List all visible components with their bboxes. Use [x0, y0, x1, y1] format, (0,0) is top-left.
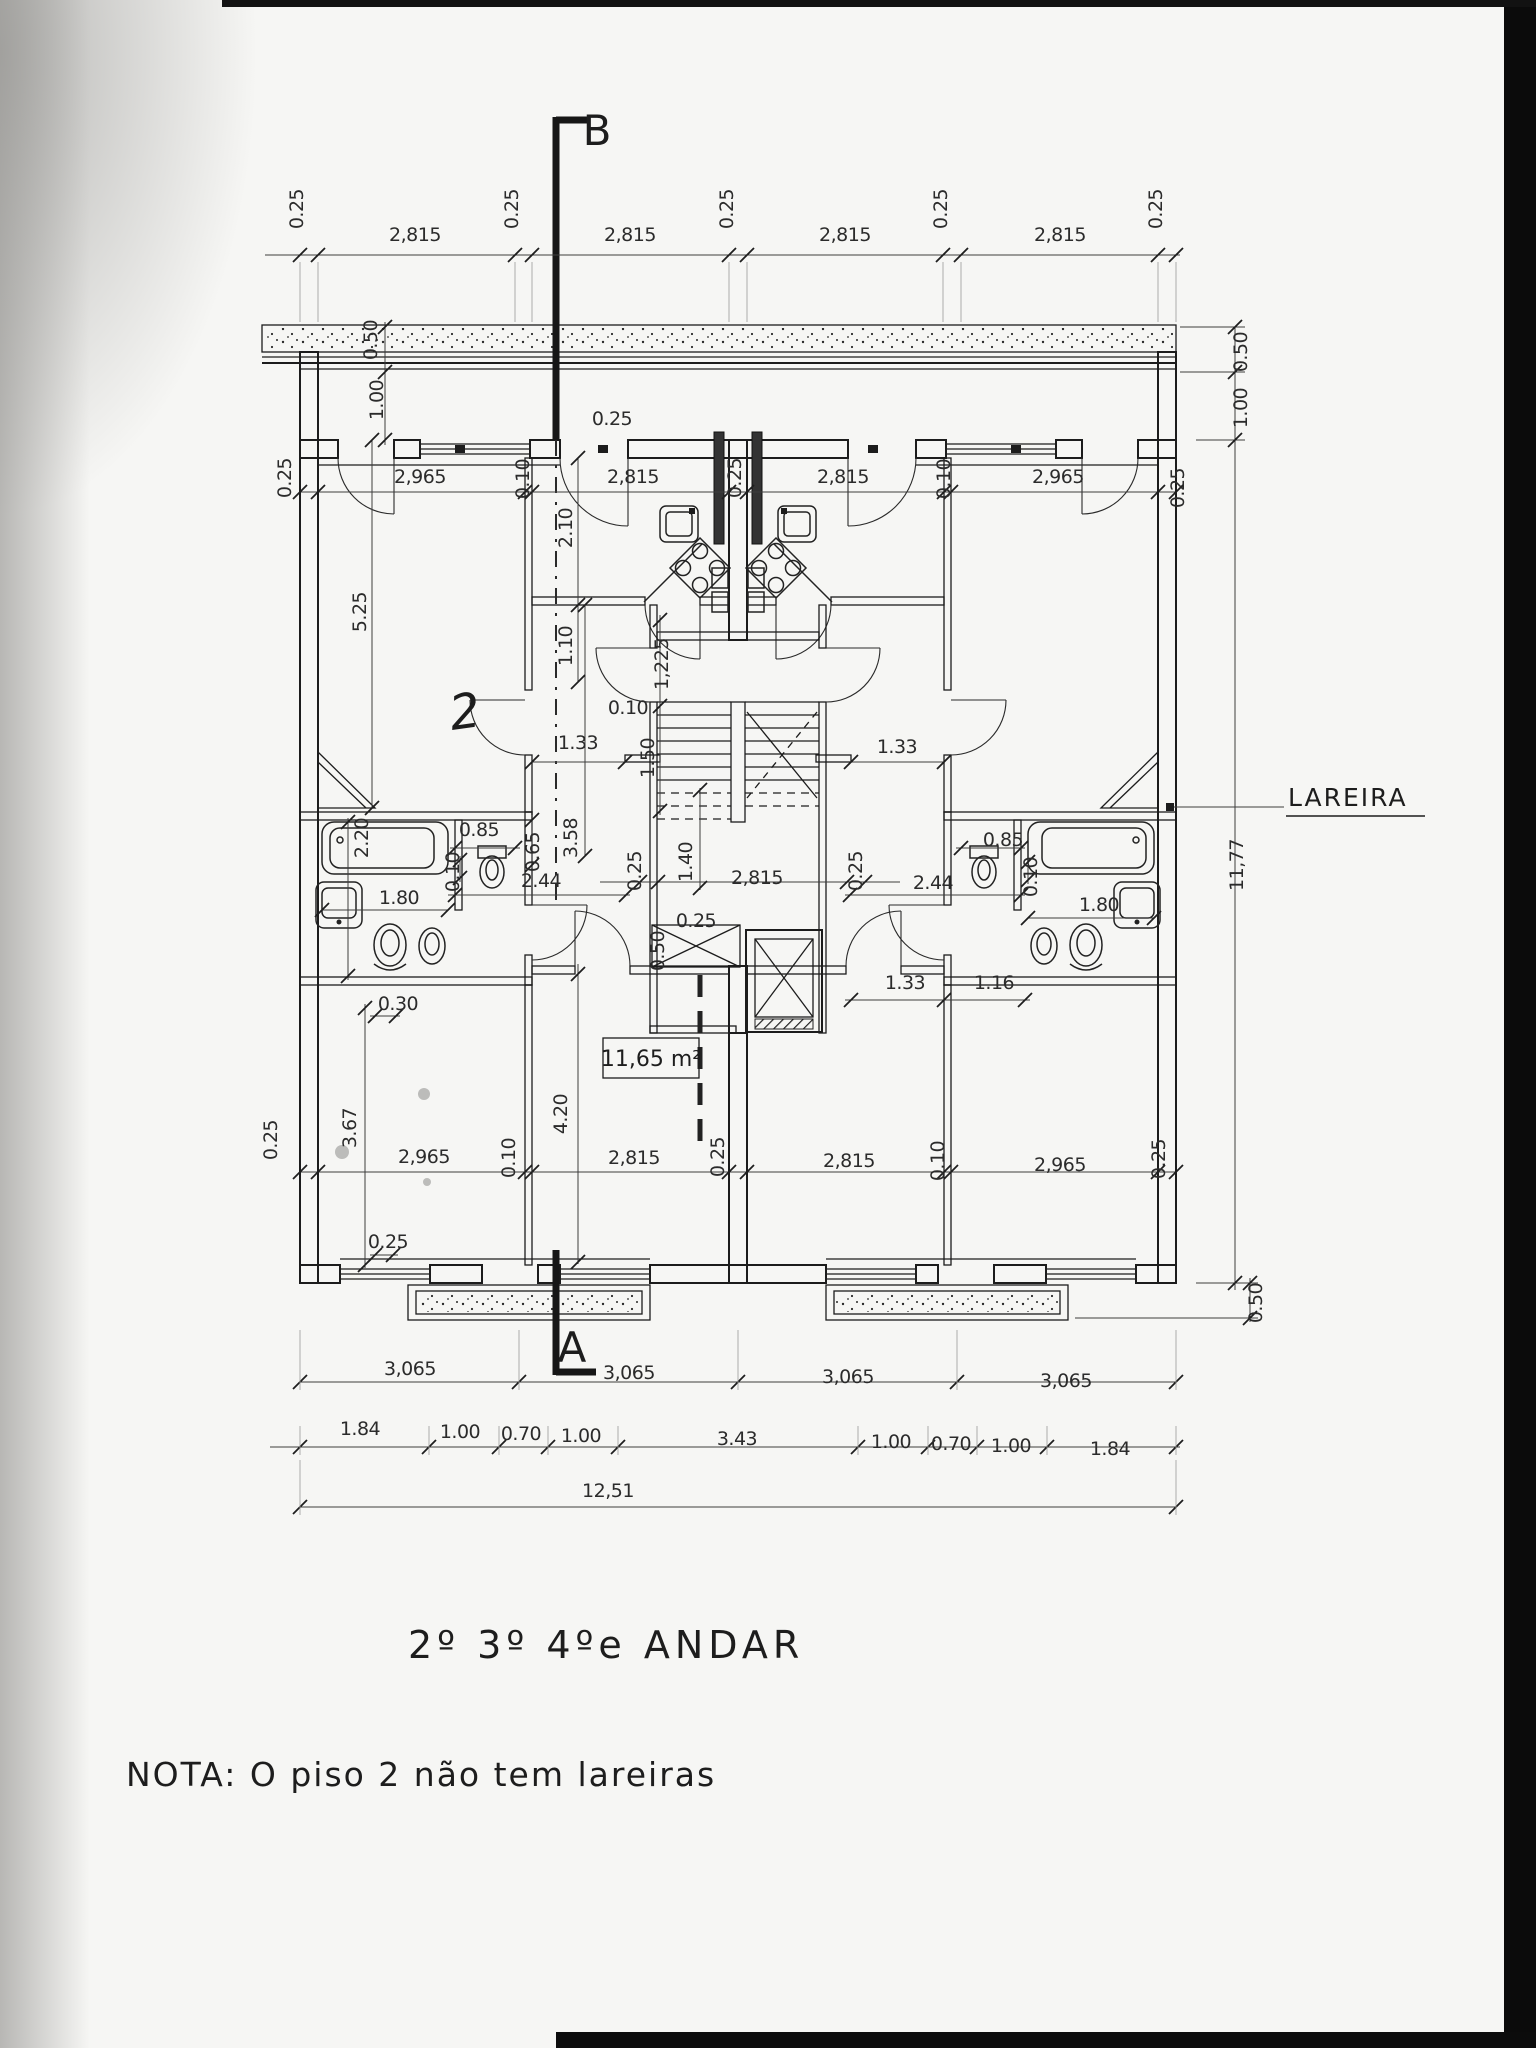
- dimension-label: 2.20: [351, 818, 373, 858]
- fireplace: [318, 752, 375, 808]
- dimension-label: 2,815: [1034, 224, 1086, 246]
- dimension-label: 0.10: [1020, 857, 1042, 897]
- dimension-label: 2.10: [555, 508, 577, 548]
- dimension-label: 0.85: [459, 819, 499, 841]
- dimension-labels: 0.252,8150.252,8150.252,8150.252,8150.25…: [260, 189, 1267, 1502]
- dimension-label: 3,065: [1040, 1370, 1092, 1392]
- handwritten-mark: 2: [446, 682, 484, 742]
- dimension-label: 0.25: [592, 408, 632, 430]
- dimension-label: 1.16: [974, 972, 1014, 994]
- wc-toilet: [478, 846, 506, 888]
- dimension-label: 12,51: [582, 1480, 634, 1502]
- dimension-label: 2,815: [604, 224, 656, 246]
- dimension-label: 0.25: [707, 1137, 729, 1177]
- dimension-label: 11,77: [1226, 839, 1248, 891]
- dimension-label: 2,965: [398, 1146, 450, 1168]
- window-glazing: [340, 1269, 650, 1279]
- dimension-label: 0.85: [983, 829, 1023, 851]
- svg-text:11,65 m²: 11,65 m²: [601, 1047, 701, 1072]
- dimension-label: 2.44: [521, 870, 562, 892]
- dimension-label: 1.10: [555, 626, 577, 666]
- dimension-label: 3.67: [339, 1108, 361, 1148]
- dimension-label: 0.10: [442, 852, 464, 892]
- dimension-label: 0.25: [676, 910, 716, 932]
- dimension-label: 0.25: [274, 458, 296, 498]
- dimension-label: 0.30: [378, 993, 418, 1015]
- dimension-label: 2,815: [823, 1150, 875, 1172]
- leader-arrow-icon: [1166, 803, 1174, 811]
- section-marker-a: A: [558, 1323, 587, 1372]
- dimension-label: 0.70: [501, 1423, 541, 1445]
- dimension-label: 0.25: [1145, 189, 1167, 229]
- dimension-label: 2,965: [394, 466, 446, 488]
- dimension-label: 3,065: [822, 1366, 874, 1388]
- dimension-label: 1.00: [871, 1431, 911, 1453]
- bathtub: [322, 822, 448, 874]
- dimension-label: 3.58: [560, 818, 582, 858]
- dimension-label: 2.44: [913, 872, 954, 894]
- dimension-label: 0.65: [522, 832, 544, 872]
- dimension-label: 1.00: [561, 1425, 601, 1447]
- dimension-label: 1.33: [885, 972, 925, 994]
- dimension-label: 1.33: [877, 736, 917, 758]
- dimension-label: 3.43: [717, 1428, 757, 1450]
- dimension-label: 0.10: [498, 1138, 520, 1178]
- dimension-label: 1.84: [1090, 1438, 1131, 1460]
- dimension-label: 0.25: [286, 189, 308, 229]
- dimension-label: 0.25: [724, 458, 746, 498]
- window-glazing: [420, 444, 608, 454]
- dimension-label: 2,965: [1032, 466, 1084, 488]
- elevator-shaft: [746, 930, 822, 1032]
- lareira-label: LAREIRA: [1288, 783, 1408, 812]
- kitchen-sink: [660, 506, 698, 542]
- dimension-label: 0.70: [931, 1433, 971, 1455]
- bottom-balcony-right: [826, 1285, 1068, 1320]
- plan-title: 2º 3º 4ºe ANDAR: [408, 1623, 804, 1667]
- dimension-label: 3,065: [603, 1362, 655, 1384]
- scan-edge-right: [1504, 0, 1536, 2048]
- dimension-label: 1.40: [675, 842, 697, 882]
- kitchen-stove: [644, 538, 730, 612]
- dimension-label: 1.00: [440, 1421, 480, 1443]
- stair-treads: [657, 702, 819, 822]
- dimension-label: 0.10: [512, 459, 534, 499]
- dimension-label: 2,815: [731, 867, 783, 889]
- dimension-label: 0.25: [624, 851, 646, 891]
- section-marker-b: B: [583, 106, 612, 155]
- dimension-label: 0.25: [716, 189, 738, 229]
- scanned-floor-plan-page: LAREIRA 11,65 m² 0.252,8150.252,8150.252…: [0, 0, 1536, 2048]
- dimension-label: 1.00: [366, 380, 388, 420]
- top-balcony: [262, 325, 1176, 369]
- dimension-label: 5.25: [349, 592, 371, 632]
- dimension-label: 0.50: [1245, 1283, 1267, 1323]
- room-area-label: 11,65 m²: [601, 1038, 701, 1078]
- dimension-label: 1.50: [637, 738, 659, 778]
- dimension-label: 0.25: [930, 189, 952, 229]
- toilet: [374, 924, 406, 970]
- dimension-label: 1,225: [651, 638, 673, 690]
- dimension-label: 1.00: [1230, 388, 1252, 428]
- dimension-label: 0.10: [927, 1141, 949, 1181]
- dimension-label: 2,815: [608, 1147, 660, 1169]
- dimension-label: 0.50: [647, 931, 669, 971]
- dimension-label: 1.80: [1079, 894, 1119, 916]
- dimension-label: 0.25: [260, 1120, 282, 1160]
- dimension-label: 4.20: [550, 1094, 572, 1134]
- dimension-label: 0.25: [1148, 1139, 1170, 1179]
- dimension-label: 1.33: [558, 732, 598, 754]
- bathroom-sink: [316, 882, 362, 928]
- dimension-label: 0.10: [933, 459, 955, 499]
- dimension-label: 1.84: [340, 1418, 381, 1440]
- dimension-label: 0.25: [845, 851, 867, 891]
- dimension-label: 2,815: [817, 466, 869, 488]
- fireplace-callout: LAREIRA: [1166, 783, 1425, 816]
- dimension-label: 2,965: [1034, 1154, 1086, 1176]
- dimension-label: 0.25: [501, 189, 523, 229]
- scan-edge-top: [222, 0, 1536, 7]
- dimension-label: 0.25: [368, 1231, 408, 1253]
- dimension-label: 0.50: [360, 320, 382, 360]
- scan-edge-bottom: [556, 2032, 1536, 2048]
- dimension-label: 2,815: [607, 466, 659, 488]
- dimension-label: 0.25: [1167, 468, 1189, 508]
- dimension-label: 0.50: [1230, 332, 1252, 372]
- dimension-label: 2,815: [819, 224, 871, 246]
- dimension-label: 1.00: [991, 1435, 1031, 1457]
- dimension-label: 1.80: [379, 887, 419, 909]
- dimension-label: 0.10: [608, 697, 648, 719]
- dimension-label: 3,065: [384, 1358, 436, 1380]
- plan-note: NOTA: O piso 2 não tem lareiras: [126, 1755, 716, 1794]
- scan-edge-left: [0, 0, 90, 2048]
- bidet: [419, 928, 445, 964]
- bottom-balcony-left: [408, 1285, 650, 1320]
- dimension-label: 2,815: [389, 224, 441, 246]
- duct-shaft: [714, 432, 724, 544]
